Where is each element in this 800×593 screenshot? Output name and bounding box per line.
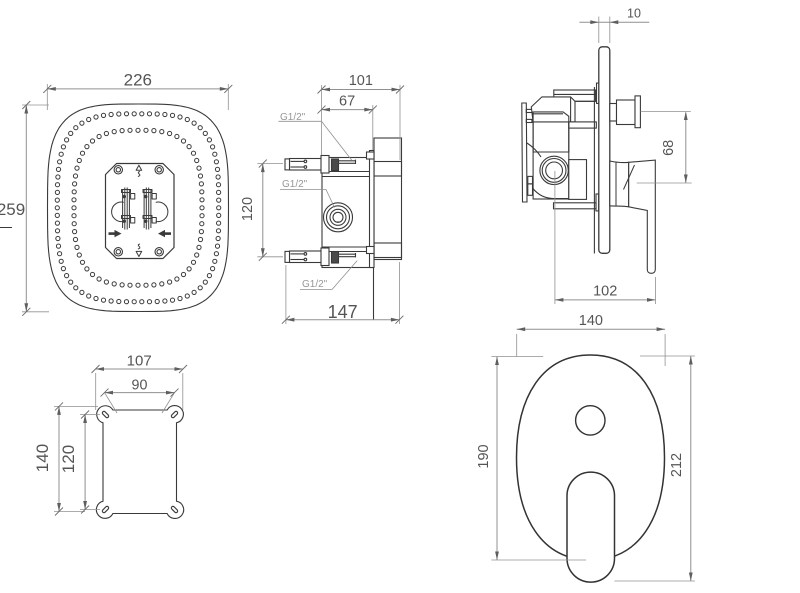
svg-text:140: 140: [579, 313, 603, 329]
svg-text:140: 140: [33, 444, 52, 472]
svg-text:120: 120: [240, 197, 256, 221]
svg-text:G1/2": G1/2": [282, 179, 308, 190]
svg-text:212: 212: [669, 453, 685, 477]
svg-text:G1/2": G1/2": [302, 279, 328, 290]
svg-text:68: 68: [661, 140, 677, 156]
svg-text:90: 90: [132, 377, 148, 393]
svg-text:190: 190: [476, 444, 492, 468]
svg-text:67: 67: [339, 94, 355, 110]
svg-text:147: 147: [328, 302, 358, 322]
svg-text:259: 259: [0, 200, 25, 219]
svg-text:10: 10: [627, 7, 641, 21]
svg-text:107: 107: [127, 352, 152, 369]
svg-text:226: 226: [124, 71, 152, 90]
svg-text:102: 102: [593, 284, 617, 300]
svg-text:101: 101: [349, 73, 373, 89]
svg-text:120: 120: [59, 445, 78, 473]
